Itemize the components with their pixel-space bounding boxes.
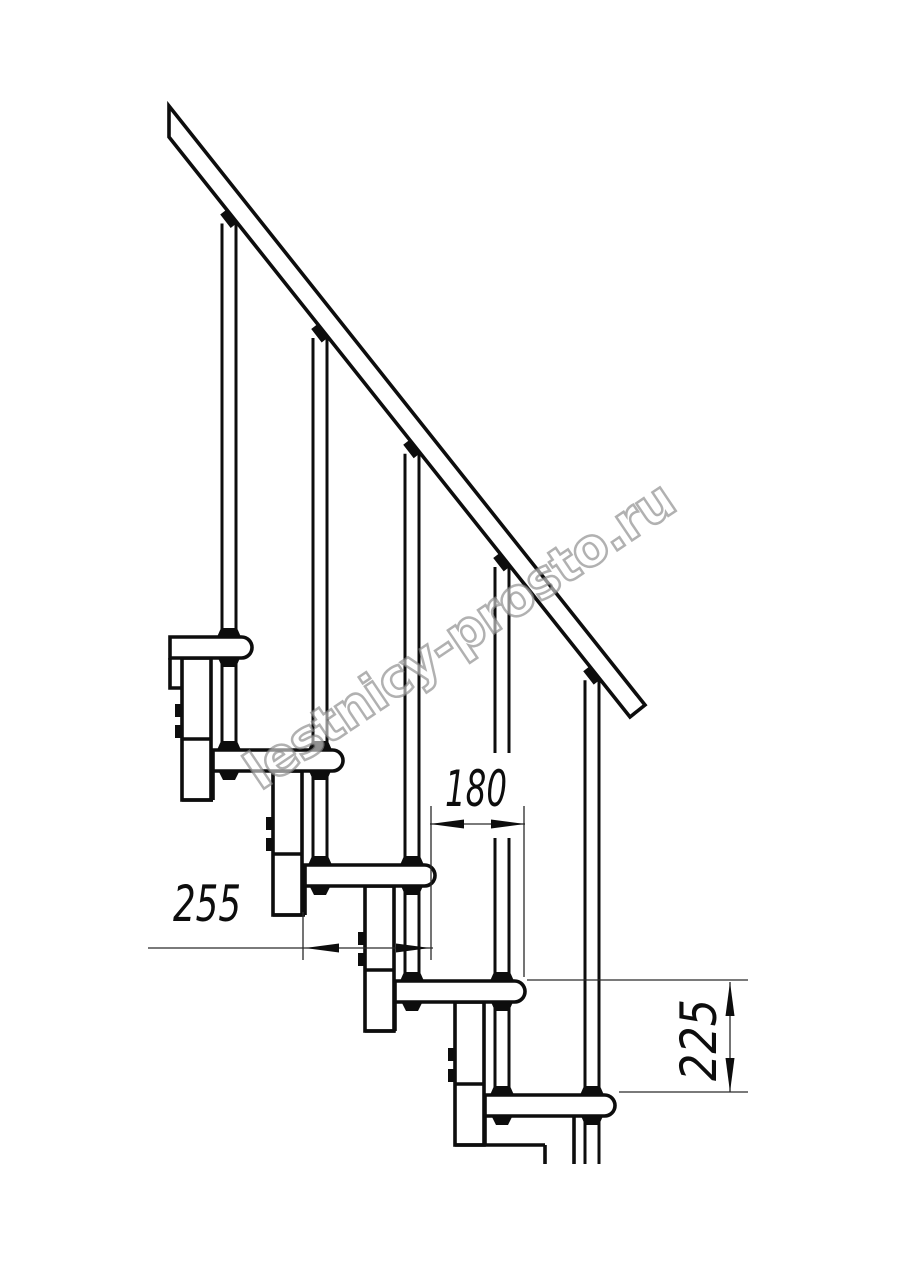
tread xyxy=(213,750,343,771)
baluster-base-pad xyxy=(580,1086,604,1095)
bolt-tab xyxy=(175,725,182,738)
bolt-nut xyxy=(402,1003,422,1011)
baluster-base-pad xyxy=(490,972,514,981)
dimension-arrow xyxy=(305,944,339,953)
stair-structure-layer xyxy=(169,106,645,1164)
support-column xyxy=(455,1002,484,1145)
bolt-tab xyxy=(448,1069,455,1082)
post-base-pad xyxy=(308,856,332,865)
baluster-base-pad xyxy=(400,856,424,865)
bolt-tab xyxy=(358,953,365,966)
baluster-base-pad xyxy=(217,628,241,637)
post-base-pad xyxy=(490,1086,514,1095)
tread xyxy=(395,981,525,1002)
bolt-tab xyxy=(175,704,182,717)
post-base-pad xyxy=(400,972,424,981)
tread xyxy=(170,637,252,658)
support-column xyxy=(365,886,394,1031)
tread xyxy=(305,865,435,886)
bolt-tab xyxy=(358,932,365,945)
bolt-nut xyxy=(219,772,239,780)
handrail xyxy=(169,106,645,717)
tread-drop xyxy=(170,658,182,688)
dimension-arrow xyxy=(396,944,430,953)
support-column xyxy=(182,658,211,800)
bolt-nut xyxy=(310,887,330,895)
technical-drawing-page: 180 255 225 lestnicy-prosto.ru xyxy=(0,0,914,1280)
staircase-technical-drawing: 180 255 225 xyxy=(0,0,914,1280)
support-column xyxy=(273,771,302,915)
dimension-run-label: 180 xyxy=(445,760,507,818)
dimension-rise-label: 225 xyxy=(670,999,728,1081)
bolt-nut xyxy=(492,1117,512,1125)
baluster-base-pad xyxy=(308,741,332,750)
tread xyxy=(485,1095,615,1116)
post-base-pad xyxy=(217,741,241,750)
bolt-tab xyxy=(266,838,273,851)
bolt-tab xyxy=(448,1048,455,1061)
dimension-arrow xyxy=(430,820,464,829)
dimension-depth-label: 255 xyxy=(173,875,241,933)
bolt-tab xyxy=(266,817,273,830)
dimension-arrow xyxy=(491,820,525,829)
